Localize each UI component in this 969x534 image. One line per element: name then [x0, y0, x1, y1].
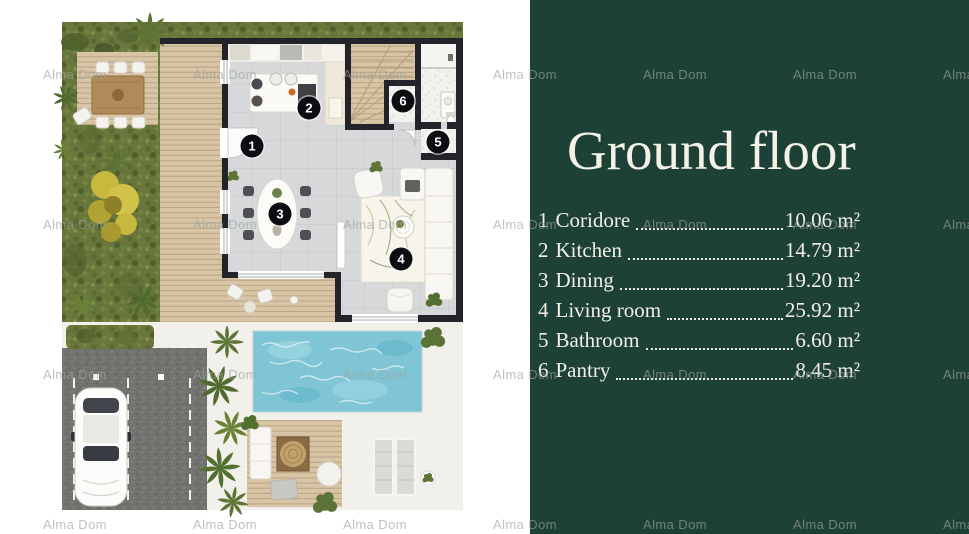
floor-plan: 1 2 3 4 5 6	[0, 0, 530, 534]
legend-area: 8.45 m²	[795, 358, 860, 388]
legend-row-kitchen: 2 Kitchen 14.79 m²	[538, 238, 860, 268]
legend-area: 10.06 m²	[785, 208, 860, 238]
leader-dots	[628, 258, 783, 260]
room-marker-5: 5	[427, 131, 450, 154]
legend-name: Pantry	[556, 358, 611, 388]
room-marker-6: 6	[392, 90, 415, 113]
legend-name: Coridore	[556, 208, 631, 238]
legend-area: 6.60 m²	[795, 328, 860, 358]
room-marker-5-label: 5	[434, 135, 441, 150]
room-marker-2: 2	[298, 97, 321, 120]
leader-dots	[616, 378, 793, 380]
pool	[253, 331, 422, 412]
floor-plan-image	[0, 0, 530, 534]
room-marker-3: 3	[269, 203, 292, 226]
legend-row-living-room: 4 Living room 25.92 m²	[538, 298, 860, 328]
legend-number: 3	[538, 268, 549, 298]
slide: 1 2 3 4 5 6 Ground floor 1 Coridore 10.0…	[0, 0, 969, 534]
legend-number: 5	[538, 328, 549, 358]
legend-row-bathroom: 5 Bathroom 6.60 m²	[538, 328, 860, 358]
legend-area: 14.79 m²	[785, 238, 860, 268]
leader-dots	[646, 348, 794, 350]
legend-name: Bathroom	[556, 328, 640, 358]
legend-number: 1	[538, 208, 549, 238]
legend-area: 19.20 m²	[785, 268, 860, 298]
leader-dots	[636, 228, 783, 230]
leader-dots	[667, 318, 783, 320]
legend-name: Living room	[556, 298, 662, 328]
room-marker-4-label: 4	[397, 252, 404, 267]
page-title: Ground floor	[567, 122, 969, 180]
info-panel: Ground floor 1 Coridore 10.06 m² 2 Kitch…	[530, 0, 969, 534]
room-marker-3-label: 3	[276, 207, 283, 222]
legend-number: 4	[538, 298, 549, 328]
room-marker-4: 4	[390, 248, 413, 271]
legend-row-pantry: 6 Pantry 8.45 m²	[538, 358, 860, 388]
room-marker-1: 1	[241, 135, 264, 158]
legend-name: Kitchen	[556, 238, 622, 268]
room-marker-1-label: 1	[248, 139, 255, 154]
leader-dots	[620, 288, 783, 290]
legend-row-dining: 3 Dining 19.20 m²	[538, 268, 860, 298]
car	[71, 388, 131, 506]
legend-number: 2	[538, 238, 549, 268]
room-marker-2-label: 2	[305, 101, 312, 116]
legend-number: 6	[538, 358, 549, 388]
room-legend: 1 Coridore 10.06 m² 2 Kitchen 14.79 m² 3…	[538, 208, 860, 388]
legend-name: Dining	[556, 268, 614, 298]
room-marker-6-label: 6	[399, 94, 406, 109]
legend-area: 25.92 m²	[785, 298, 860, 328]
legend-row-coridore: 1 Coridore 10.06 m²	[538, 208, 860, 238]
